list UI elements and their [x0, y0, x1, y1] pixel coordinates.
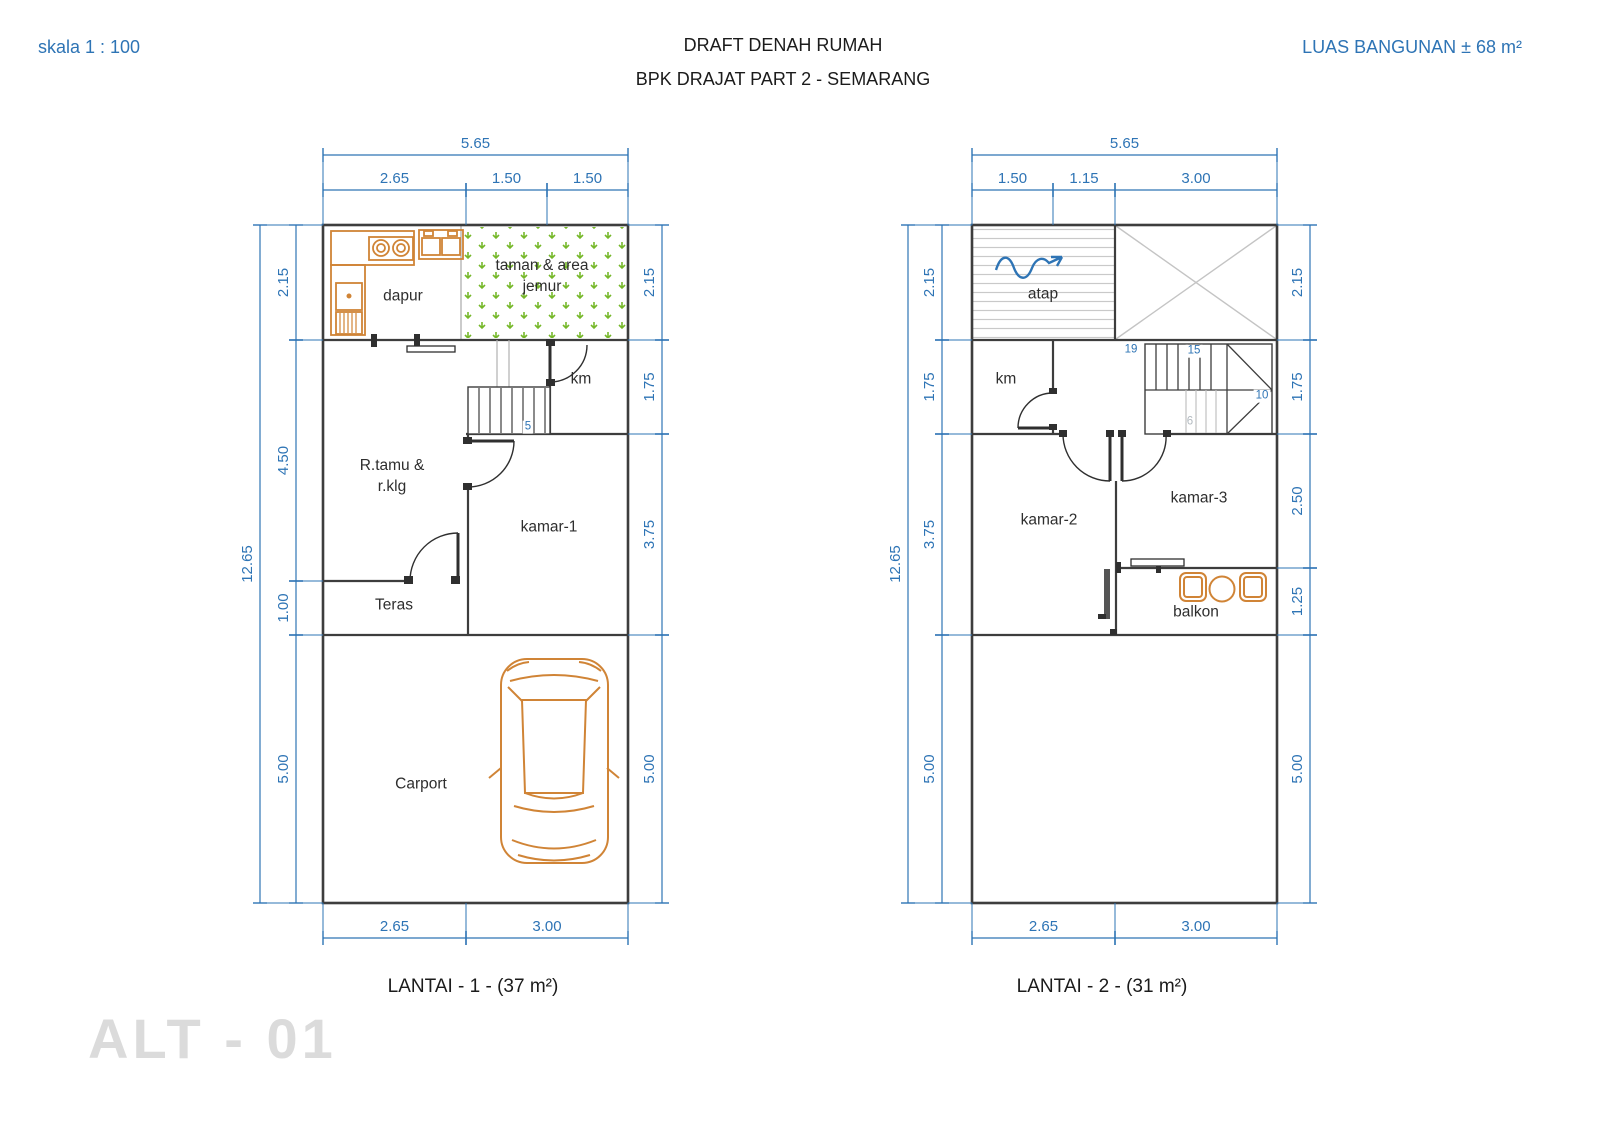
door-jambs-lantai-1: [371, 334, 555, 584]
dimension-label: 2.15: [641, 268, 658, 297]
floor-plan-sheet: skala 1 : 100 DRAFT DENAH RUMAH BPK DRAJ…: [0, 0, 1600, 1130]
stairs-icon-lantai-2: [1145, 344, 1272, 434]
doors-lantai-1: [410, 345, 587, 581]
dimension-label: 3.00: [532, 918, 561, 935]
roof-hatch-area: [973, 227, 1114, 338]
dimension-label: 2.65: [380, 918, 409, 935]
plan-lantai-1: [323, 225, 628, 903]
dimension-label: 3.00: [1181, 170, 1210, 187]
dimension-label: 1.75: [1289, 372, 1306, 401]
dimension-label: 4.50: [275, 446, 292, 475]
dimension-label: 12.65: [887, 545, 904, 583]
balcony-window-symbol: [1131, 559, 1184, 566]
alternative-watermark: ALT - 01: [88, 1006, 337, 1071]
dimension-label: 1.75: [921, 372, 938, 401]
dimension-label: 1.50: [998, 170, 1027, 187]
dimension-label: 3.75: [921, 520, 938, 549]
door-jambs-lantai-2: [1049, 388, 1171, 635]
dimension-label: 1.25: [1289, 587, 1306, 616]
dimension-label: 5.65: [461, 135, 490, 152]
dimension-label: 1.50: [492, 170, 521, 187]
dimension-label: 2.15: [921, 268, 938, 297]
floor-plan-linework: 5.652.651.501.5012.652.154.501.005.002.1…: [0, 0, 1600, 1130]
dimension-label: 2.65: [380, 170, 409, 187]
dimension-label: 1.75: [641, 372, 658, 401]
dimension-label: 2.15: [275, 268, 292, 297]
plan2-caption: LANTAI - 2 - (31 m²): [1017, 976, 1188, 998]
dimension-label: 3.00: [1181, 918, 1210, 935]
garden-plants-area: [462, 227, 626, 338]
balcony-furniture-icon: [1180, 573, 1266, 602]
dimension-label: 12.65: [239, 545, 256, 583]
stairs-icon-lantai-1: [468, 340, 550, 434]
kitchen-fixtures-icon: [331, 230, 463, 335]
dimension-label: 1.00: [275, 593, 292, 622]
window-symbol: [407, 346, 455, 352]
dimension-label: 2.65: [1029, 918, 1058, 935]
plan-lantai-2: [972, 225, 1277, 903]
dimension-label: 5.00: [275, 754, 292, 783]
plan1-caption: LANTAI - 1 - (37 m²): [388, 976, 559, 998]
dimension-label: 2.50: [1289, 486, 1306, 515]
dimension-label: 1.50: [573, 170, 602, 187]
dimension-label: 5.00: [1289, 754, 1306, 783]
dimension-label: 5.00: [921, 754, 938, 783]
dimension-label: 5.00: [641, 754, 658, 783]
dimension-label: 3.75: [641, 520, 658, 549]
dimension-label: 1.15: [1069, 170, 1098, 187]
car-icon: [489, 659, 619, 863]
void-cross: [1116, 226, 1276, 339]
doors-lantai-2: [1018, 393, 1166, 481]
dimension-label: 5.65: [1110, 135, 1139, 152]
dimension-label: 2.15: [1289, 268, 1306, 297]
